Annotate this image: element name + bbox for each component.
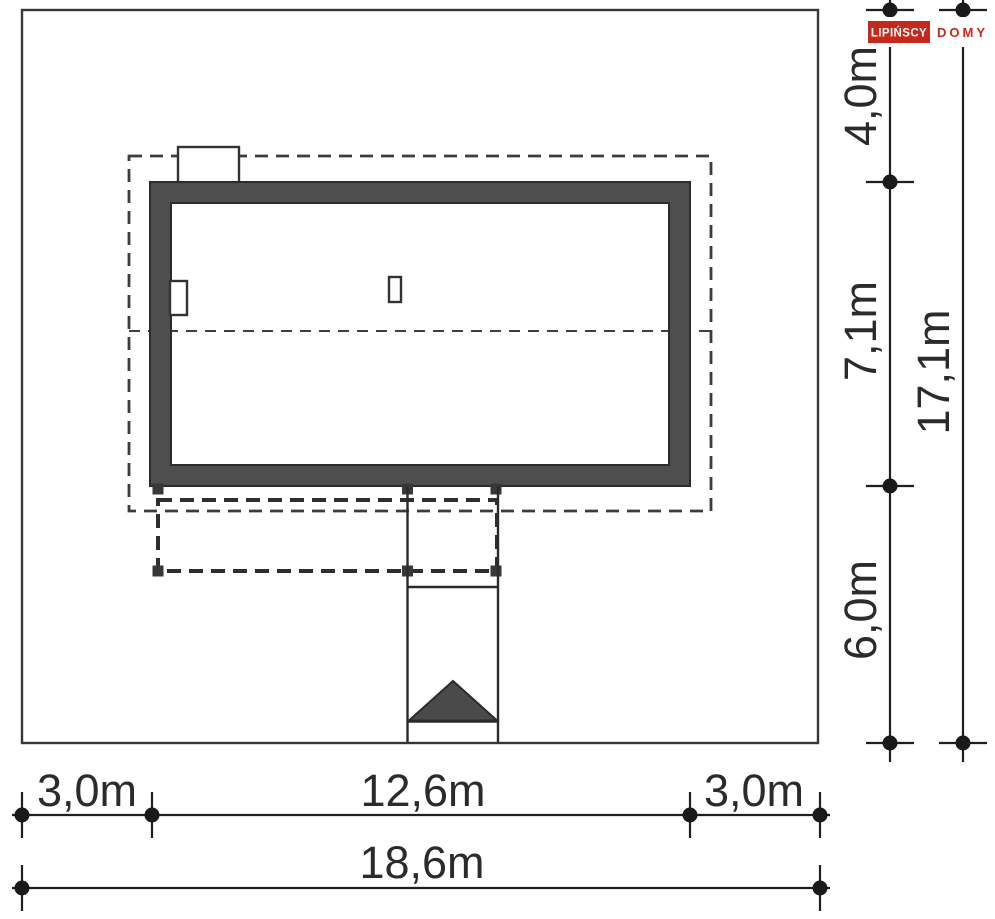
dim-label-total-depth: 17,1m (908, 309, 959, 434)
dim-point (145, 808, 160, 823)
wall-vent (170, 281, 187, 315)
dim-point (956, 736, 971, 751)
dim-label-house-width: 12,6m (360, 765, 485, 816)
interior-chimney (389, 277, 401, 302)
logo-suffix-label: DOMY (937, 25, 988, 40)
dim-point (883, 3, 898, 18)
dim-label-top-margin: 4,0m (835, 46, 886, 146)
dim-point (683, 808, 698, 823)
dimensions-bottom: 3,0m 12,6m 3,0m 18,6m (12, 765, 830, 911)
dim-point (813, 881, 828, 896)
terrace-post (491, 566, 502, 577)
chimney (178, 147, 239, 183)
dimensions-right: 4,0m 7,1m 6,0m 17,1m (835, 0, 987, 762)
logo-brand-text: LIPIŃSCY (871, 27, 927, 40)
dim-point (15, 881, 30, 896)
dim-point (883, 479, 898, 494)
terrace-post (491, 484, 502, 495)
dim-label-right-margin: 3,0m (704, 765, 804, 816)
dim-label-left-margin: 3,0m (37, 765, 137, 816)
dim-point (883, 175, 898, 190)
terrace-post (153, 566, 164, 577)
plot-boundary (22, 10, 818, 743)
dim-point (15, 808, 30, 823)
dim-label-house-depth: 7,1m (835, 281, 886, 381)
dim-point (956, 3, 971, 18)
dim-point (883, 736, 898, 751)
brand-logo: LIPIŃSCY DOMY (861, 17, 989, 47)
dim-label-total-width: 18,6m (359, 837, 484, 888)
terrace-post (153, 484, 164, 495)
dim-label-bottom-margin: 6,0m (835, 560, 886, 660)
site-plan-canvas: 3,0m 12,6m 3,0m 18,6m 4,0m 7,1m 6,0m 17,… (0, 0, 995, 919)
dim-point (813, 808, 828, 823)
